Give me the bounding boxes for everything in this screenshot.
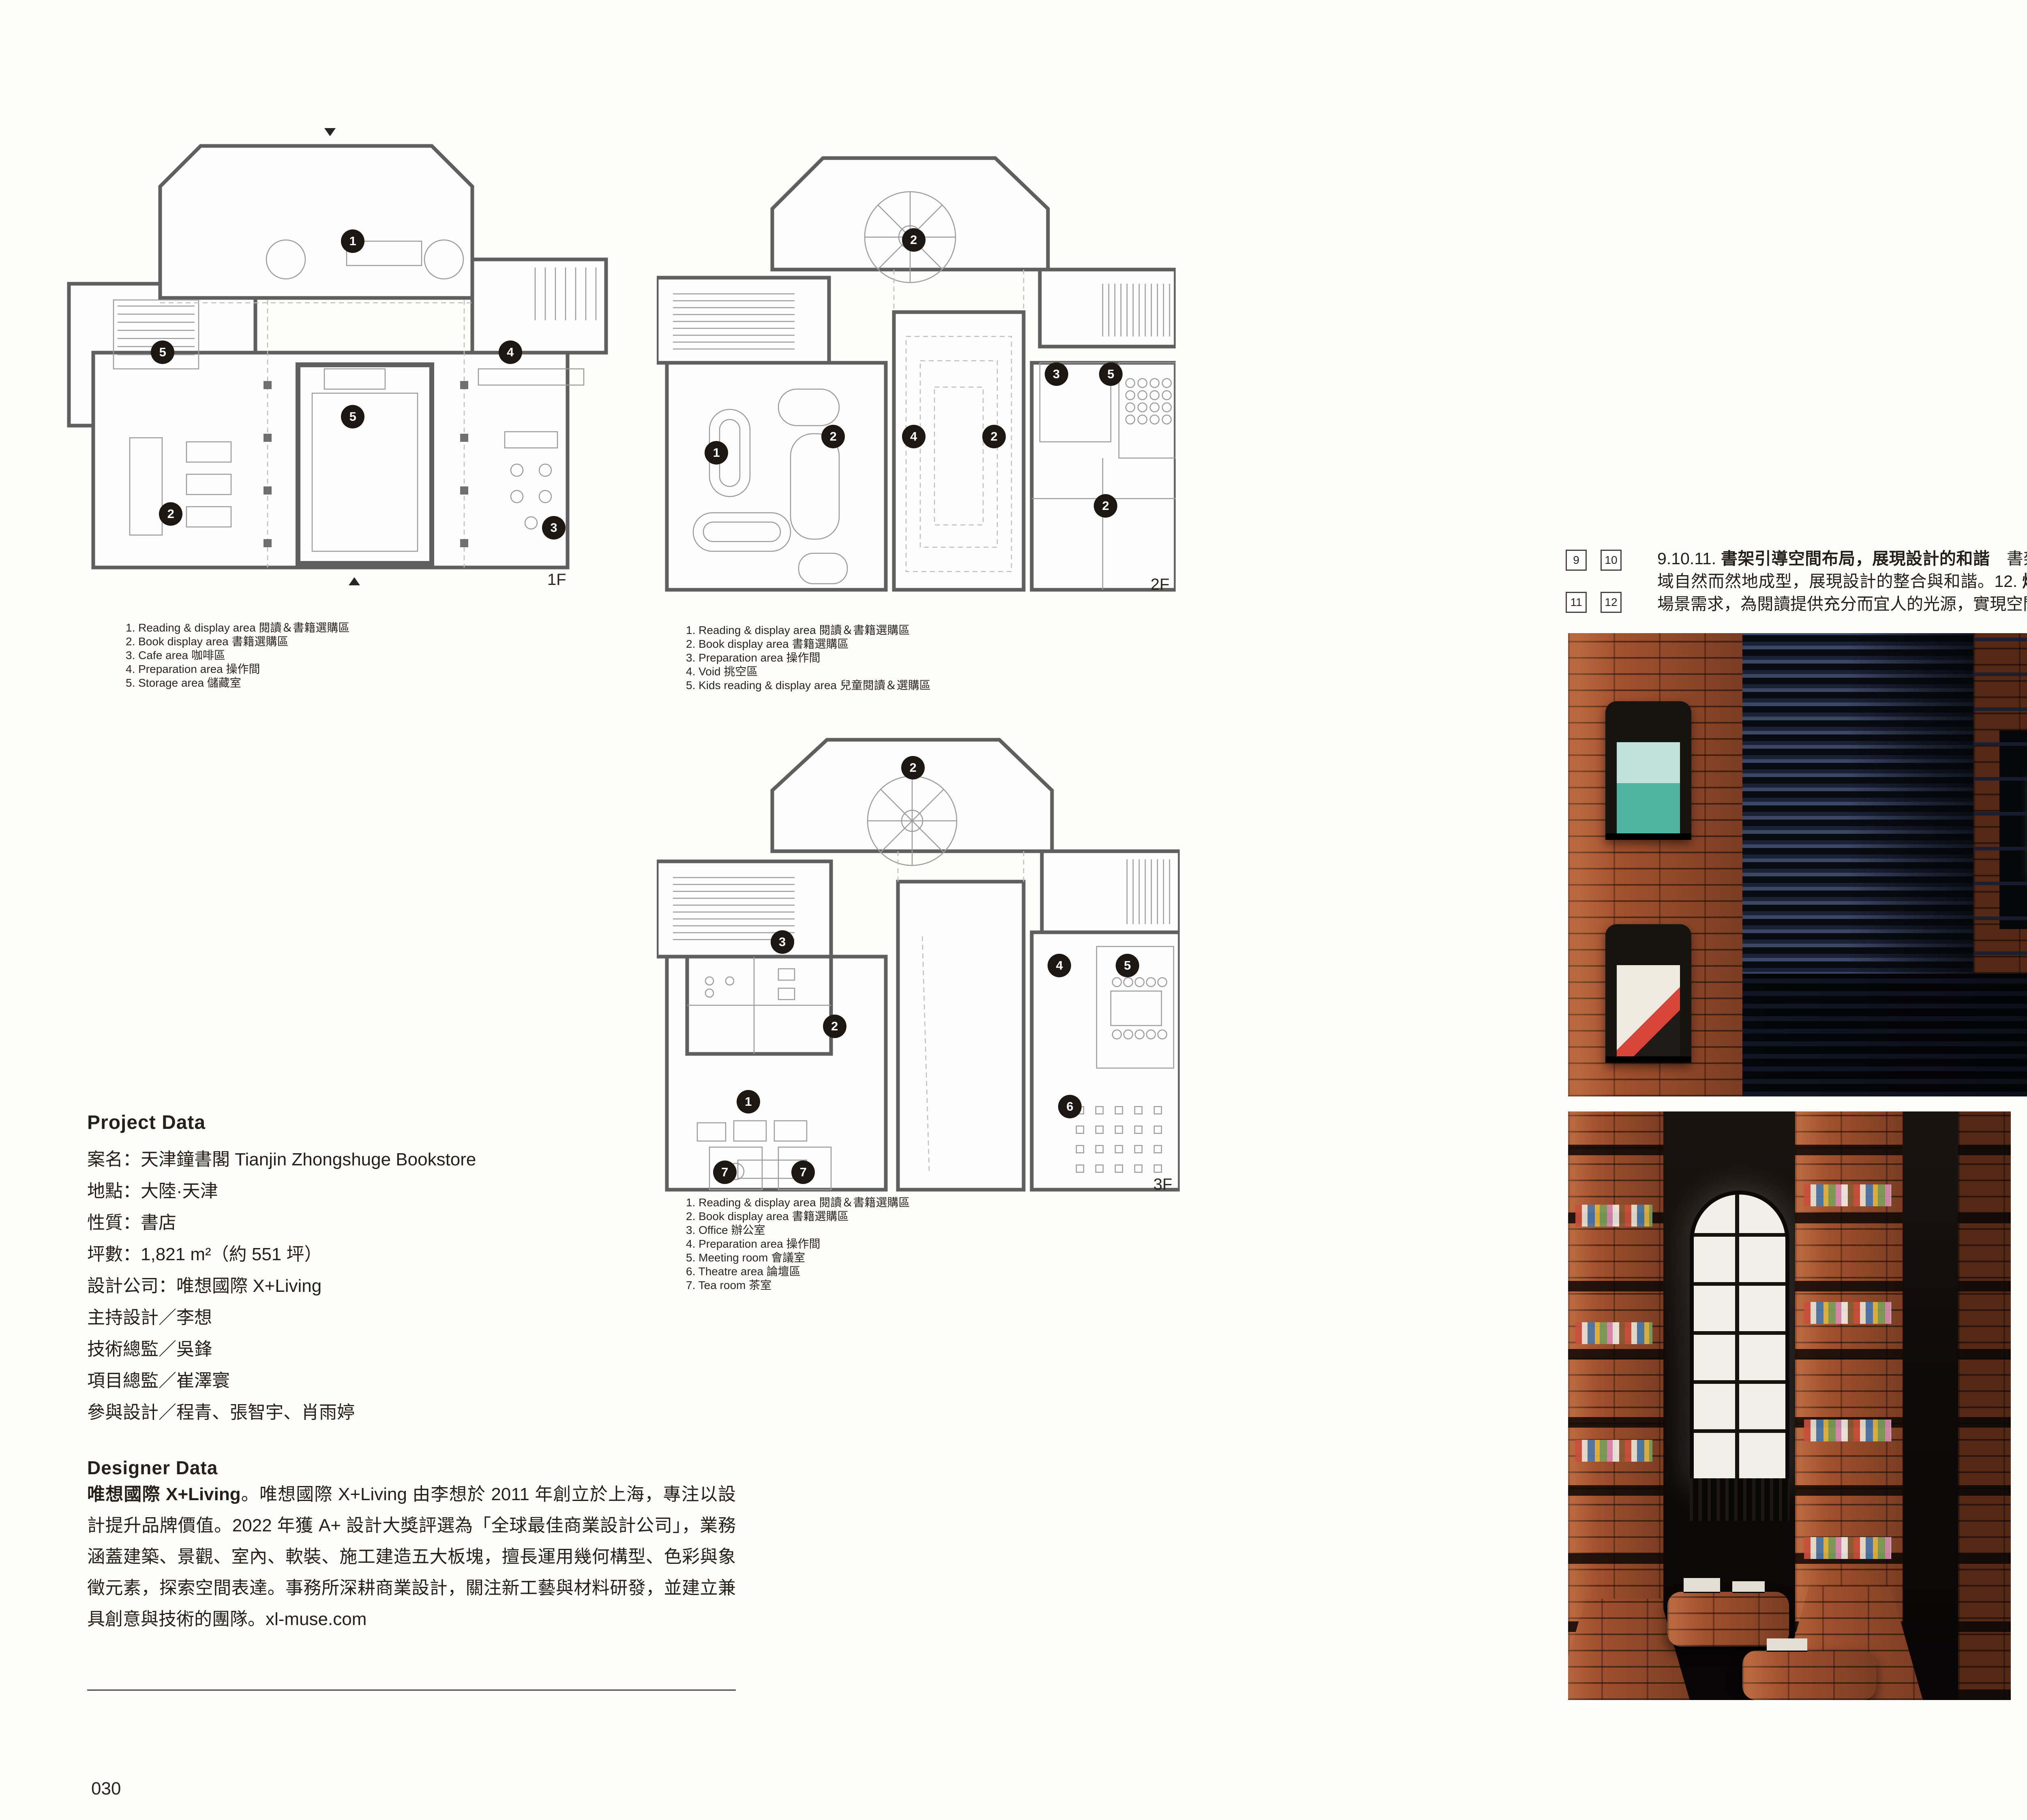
book-stack: [1767, 1638, 1807, 1651]
floor-plan-2f: 23524212: [657, 134, 1176, 596]
page-number-left: 030: [91, 1779, 121, 1799]
area-marker-4: 4: [1048, 954, 1071, 977]
plan-label-1f: 1F: [547, 571, 566, 589]
area-marker-5: 5: [1099, 362, 1123, 386]
area-marker-5: 5: [341, 405, 364, 428]
legend-item: 5. Storage area 儲藏室: [126, 676, 349, 690]
figure-ref-9: 9: [1566, 550, 1587, 571]
radiator: [1690, 1478, 1789, 1521]
area-marker-4: 4: [499, 340, 522, 364]
plan-label-2f: 2F: [1151, 576, 1170, 594]
area-marker-3: 3: [771, 930, 794, 954]
book-column-left: [1568, 1111, 1663, 1700]
area-marker-1: 1: [705, 441, 728, 465]
photo-arched-hall: [1568, 1111, 2011, 1700]
area-marker-2: 2: [982, 425, 1006, 448]
floor-plan-3f: 234521677: [657, 726, 1180, 1196]
book-column-center: [1795, 1111, 1903, 1700]
legend-item: 7. Tea room 茶室: [686, 1278, 910, 1292]
footer-rule: [87, 1689, 736, 1691]
project-data-rows: 案名：天津鐘書閣 Tianjin Zhongshuge Bookstore地點：…: [87, 1144, 476, 1428]
project-data-row: 設計公司：唯想國際 X+Living: [87, 1270, 476, 1302]
paragraph-text: 9.10.11.: [1657, 549, 1721, 568]
paragraph-subhead: 書架引導空間布局，展現設計的和諧: [1721, 549, 1990, 568]
slat-overlay: [1973, 633, 2027, 990]
legend-item: 3. Preparation area 操作間: [686, 651, 931, 665]
book-stack: [1732, 1581, 1765, 1592]
book-column-right-edge: [1958, 1111, 2011, 1700]
magazine-holder: [1605, 924, 1691, 1063]
area-marker-1: 1: [737, 1090, 760, 1113]
figure-ref-11: 11: [1566, 592, 1587, 613]
figure-ref-12: 12: [1601, 592, 1622, 613]
plan-legend-2f: 1. Reading & display area 閱讀＆書籍選購區2. Boo…: [686, 623, 931, 692]
plan-legend-3f: 1. Reading & display area 閱讀＆書籍選購區2. Boo…: [686, 1196, 910, 1292]
book-strip: [1575, 1322, 1652, 1344]
legend-item: 5. Kids reading & display area 兒童閱讀＆選購區: [686, 679, 931, 692]
legend-item: 3. Office 辦公室: [686, 1223, 910, 1237]
magazine-holder: [1605, 701, 1691, 840]
area-marker-5: 5: [151, 340, 174, 364]
floor-plan-1f: 154523: [65, 126, 608, 588]
book-strip: [1804, 1184, 1891, 1206]
project-data-heading: Project Data: [87, 1111, 206, 1134]
photo-credit: 圖片提供｜唯想國際 X+Living 攝影｜SFAP: [1865, 1707, 2027, 1730]
legend-item: 4. Preparation area 操作間: [686, 1237, 910, 1251]
area-marker-3: 3: [542, 516, 566, 540]
area-marker-2: 2: [901, 756, 925, 779]
brick-plinth: [1742, 1651, 1876, 1700]
book-strip: [1575, 1440, 1652, 1462]
book-strip: [1804, 1302, 1891, 1324]
figure-ref-10: 10: [1601, 550, 1622, 571]
area-marker-2: 2: [902, 228, 926, 252]
project-data-row: 參與設計／程青、張智宇、肖雨婷: [87, 1397, 476, 1428]
area-marker-1: 1: [341, 229, 364, 253]
photo-slat-tunnel: [1568, 633, 2027, 1096]
book-strip: [1804, 1420, 1891, 1441]
area-marker-6: 6: [1058, 1095, 1082, 1118]
legend-item: 5. Meeting room 會議室: [686, 1251, 910, 1265]
project-data-row: 坪數：1,821 m²（約 551 坪）: [87, 1239, 476, 1270]
area-marker-2: 2: [1094, 494, 1117, 518]
stacked-slats-lower: [1742, 974, 2027, 1096]
paragraph-subhead: 燈光設計模擬自然天光，塑造空間氛圍: [2022, 572, 2027, 591]
area-marker-4: 4: [902, 425, 926, 448]
arched-window: [1690, 1190, 1789, 1482]
legend-item: 4. Void 挑空區: [686, 665, 931, 679]
project-data-row: 項目總監／崔澤寰: [87, 1365, 476, 1397]
project-data-row: 地點：大陸·天津: [87, 1176, 476, 1207]
area-marker-7: 7: [791, 1161, 815, 1184]
book-strip: [1575, 1205, 1652, 1227]
legend-item: 1. Reading & display area 閱讀＆書籍選購區: [686, 1196, 910, 1210]
project-data-row: 主持設計／李想: [87, 1302, 476, 1334]
area-marker-2: 2: [823, 1015, 846, 1038]
brick-column: [1568, 633, 1742, 1096]
magazine-spread: 154523 1F 1. Reading & display area 閱讀＆書…: [0, 0, 2027, 1820]
project-data-row: 案名：天津鐘書閣 Tianjin Zhongshuge Bookstore: [87, 1144, 476, 1176]
plan-legend-1f: 1. Reading & display area 閱讀＆書籍選購區2. Boo…: [126, 621, 349, 690]
book-strip: [1804, 1537, 1891, 1559]
article-paragraph: 9.10.11. 書架引導空間布局，展現設計的和諧 書架隨著空間自然延展，順勢引…: [1657, 547, 2027, 615]
area-marker-3: 3: [1045, 362, 1068, 386]
area-marker-7: 7: [713, 1161, 737, 1184]
magazine-cover: [1617, 742, 1680, 833]
legend-item: 2. Book display area 書籍選購區: [686, 637, 931, 651]
shelf-bands: [1958, 1111, 2011, 1700]
legend-item: 2. Book display area 書籍選購區: [686, 1210, 910, 1223]
designer-data-paragraph: 唯想國際 X+Living。唯想國際 X+Living 由李想於 2011 年創…: [87, 1479, 736, 1635]
plan-label-3f: 3F: [1153, 1176, 1172, 1194]
area-marker-2: 2: [159, 502, 182, 526]
area-marker-2: 2: [821, 425, 845, 448]
holder-lip: [1605, 1056, 1691, 1063]
area-marker-5: 5: [1116, 954, 1139, 977]
figure-reference-boxes: 9101112: [1566, 550, 1622, 613]
legend-item: 3. Cafe area 咖啡區: [126, 649, 349, 662]
legend-item: 1. Reading & display area 閱讀＆書籍選購區: [686, 623, 931, 637]
legend-item: 4. Preparation area 操作間: [126, 662, 349, 676]
designer-name: 唯想國際 X+Living: [87, 1484, 241, 1504]
project-data-row: 性質：書店: [87, 1207, 476, 1239]
legend-item: 2. Book display area 書籍選購區: [126, 635, 349, 649]
plan-markers-1f: 154523: [65, 126, 608, 588]
plan-markers-3f: 234521677: [657, 726, 1180, 1196]
designer-data-heading: Designer Data: [87, 1457, 218, 1479]
holder-lip: [1605, 833, 1691, 840]
legend-item: 6. Theatre area 論壇區: [686, 1265, 910, 1278]
plan-markers-2f: 23524212: [657, 134, 1176, 596]
project-data-row: 技術總監／吳鋒: [87, 1334, 476, 1365]
book-stack: [1684, 1578, 1720, 1592]
blue-slat-structure: [1742, 633, 1973, 990]
designer-description: 。唯想國際 X+Living 由李想於 2011 年創立於上海，專注以設計提升品…: [87, 1484, 736, 1629]
back-brick-wall: [1973, 633, 2027, 990]
magazine-cover: [1617, 965, 1680, 1056]
legend-item: 1. Reading & display area 閱讀＆書籍選購區: [126, 621, 349, 635]
